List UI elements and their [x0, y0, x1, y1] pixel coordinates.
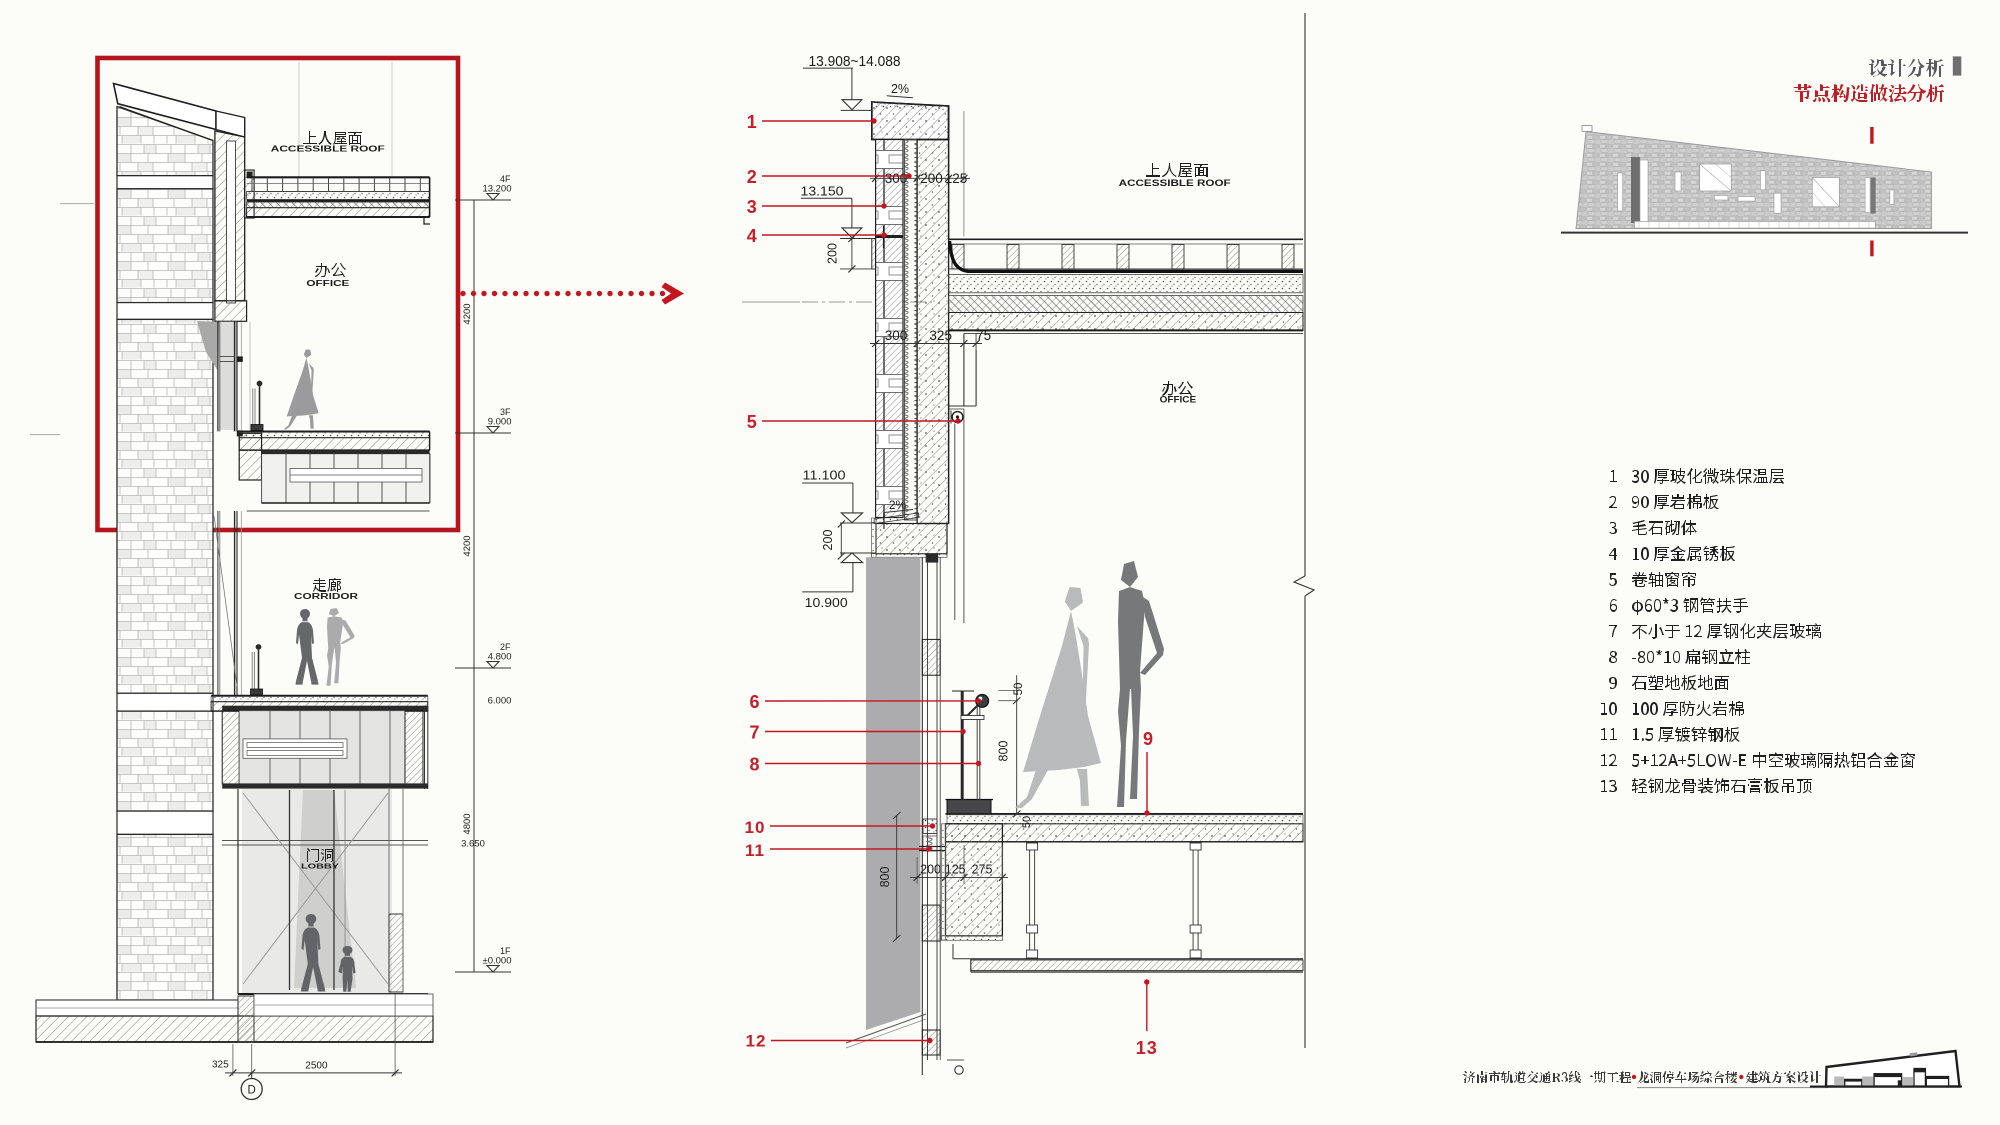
svg-text:325: 325 — [212, 1060, 229, 1071]
svg-text:6.000: 6.000 — [488, 696, 512, 707]
svg-text:11.100: 11.100 — [803, 468, 846, 483]
svg-text:4800: 4800 — [462, 813, 473, 834]
svg-text:OFFICE: OFFICE — [306, 279, 349, 288]
svg-text:12: 12 — [746, 1032, 767, 1051]
svg-text:4200: 4200 — [462, 303, 473, 324]
svg-text:2: 2 — [747, 167, 758, 187]
svg-text:CORRIDOR: CORRIDOR — [294, 592, 358, 601]
svg-text:4: 4 — [747, 226, 758, 246]
svg-text:11: 11 — [745, 841, 765, 860]
svg-text:200: 200 — [920, 171, 943, 186]
svg-text:9.000: 9.000 — [488, 417, 512, 428]
svg-text:ACCESSIBLE ROOF: ACCESSIBLE ROOF — [1119, 178, 1232, 188]
svg-text:13.908~14.088: 13.908~14.088 — [809, 53, 901, 70]
svg-text:LOBBY: LOBBY — [301, 861, 339, 870]
svg-text:3: 3 — [747, 197, 758, 217]
svg-text:6: 6 — [749, 692, 760, 712]
svg-text:13.200: 13.200 — [482, 184, 511, 195]
svg-text:800: 800 — [878, 867, 892, 888]
svg-text:3F: 3F — [500, 407, 511, 417]
svg-text:75: 75 — [976, 328, 991, 343]
svg-text:275: 275 — [972, 863, 993, 877]
svg-text:10.900: 10.900 — [805, 595, 848, 610]
svg-text:1F: 1F — [500, 946, 511, 956]
svg-text:1: 1 — [747, 112, 758, 132]
svg-text:2500: 2500 — [305, 1061, 328, 1072]
svg-text:50: 50 — [1021, 816, 1033, 828]
svg-text:125: 125 — [945, 171, 968, 186]
svg-text:OFFICE: OFFICE — [1160, 395, 1197, 405]
svg-text:ACCESSIBLE ROOF: ACCESSIBLE ROOF — [271, 145, 385, 154]
svg-text:300: 300 — [885, 328, 908, 343]
svg-text:200: 200 — [920, 863, 941, 877]
svg-text:200: 200 — [826, 243, 840, 264]
svg-text:4.800: 4.800 — [488, 652, 512, 663]
svg-text:10: 10 — [745, 818, 766, 837]
svg-text:50: 50 — [1013, 683, 1025, 696]
svg-text:4200: 4200 — [462, 535, 473, 556]
svg-text:4F: 4F — [500, 174, 511, 184]
svg-text:D: D — [248, 1085, 256, 1097]
svg-text:2F: 2F — [500, 642, 511, 652]
svg-text:300: 300 — [885, 171, 908, 186]
svg-text:800: 800 — [997, 741, 1011, 762]
svg-text:125: 125 — [945, 863, 966, 877]
svg-text:2%: 2% — [889, 498, 907, 512]
svg-text:325: 325 — [929, 328, 952, 343]
svg-text:200: 200 — [821, 530, 835, 551]
svg-text:7: 7 — [749, 723, 760, 743]
svg-text:9: 9 — [1143, 729, 1153, 749]
svg-text:13.150: 13.150 — [801, 185, 844, 199]
svg-text:2%: 2% — [891, 82, 909, 96]
svg-text:8: 8 — [749, 755, 760, 775]
svg-text:5: 5 — [747, 412, 758, 432]
svg-text:3.650: 3.650 — [461, 839, 485, 850]
svg-text:13: 13 — [1136, 1038, 1158, 1058]
svg-text:±0.000: ±0.000 — [483, 956, 512, 967]
